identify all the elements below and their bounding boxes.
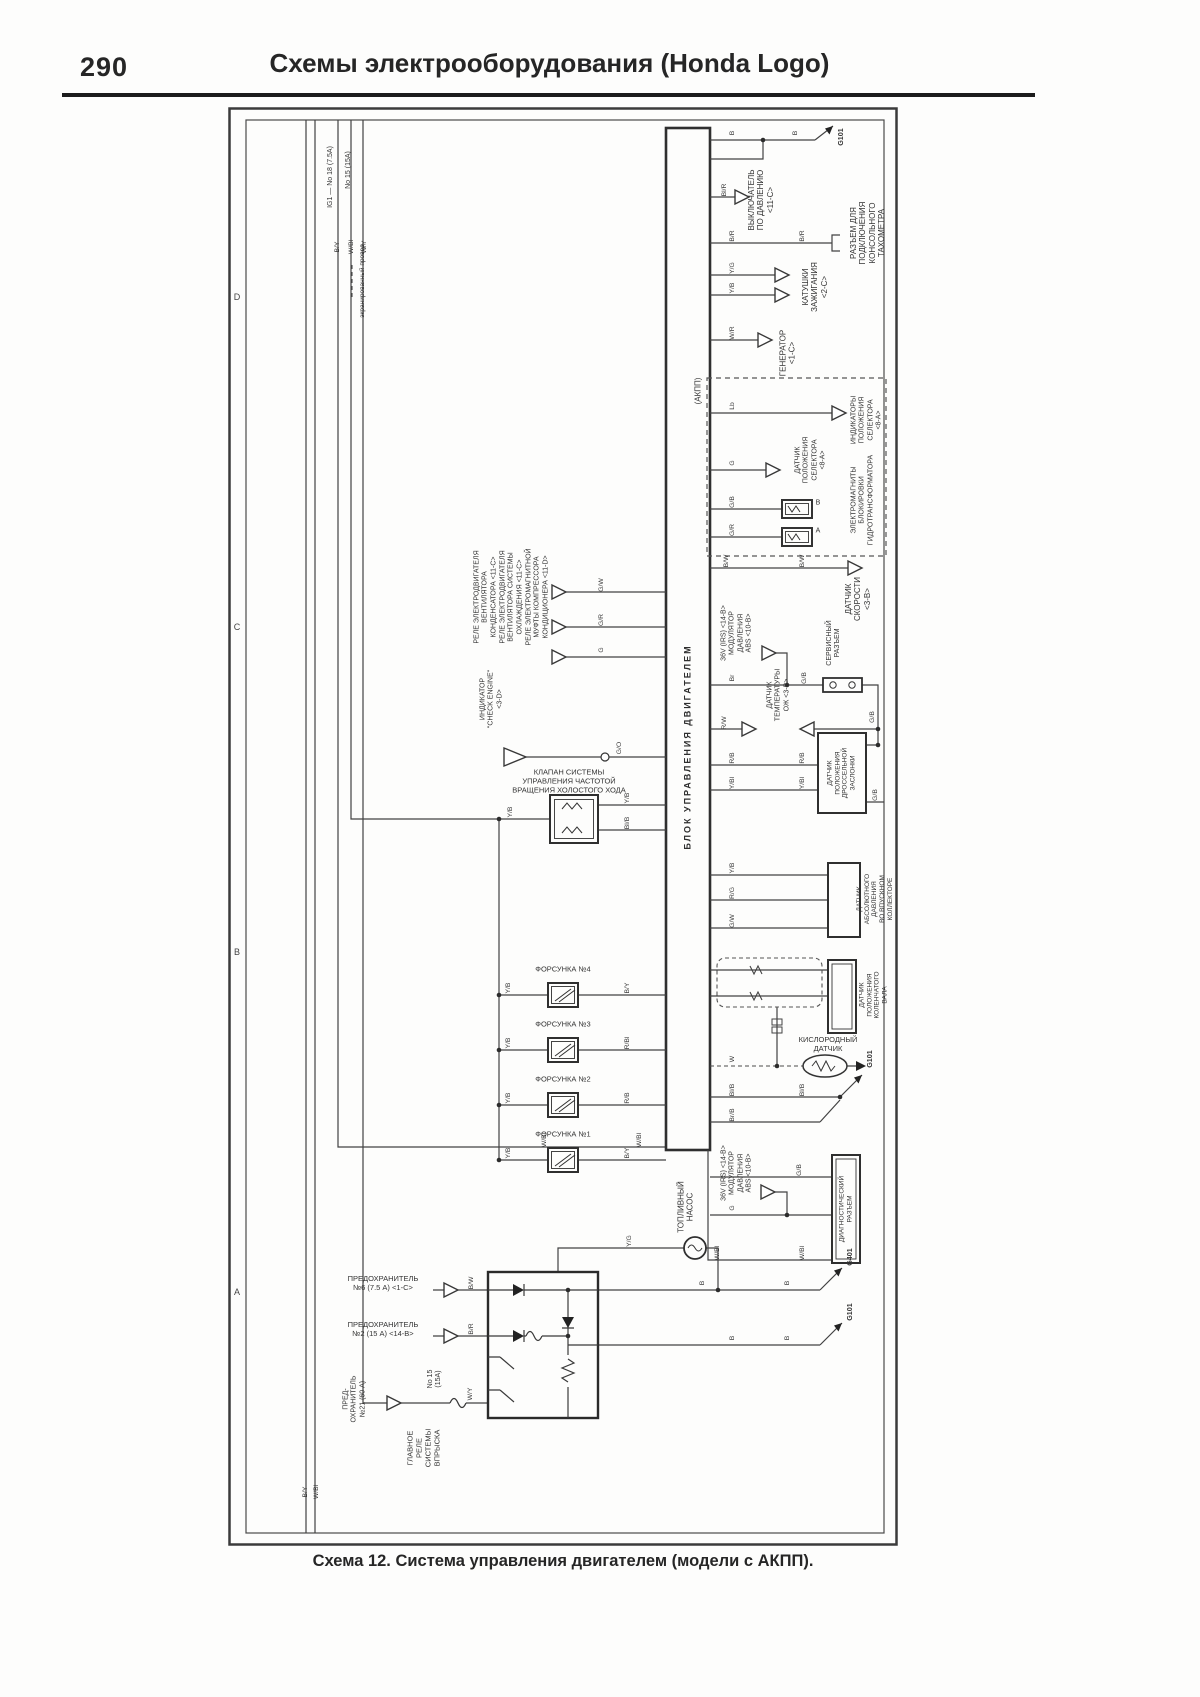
wire-color-label: Y/B bbox=[505, 1093, 513, 1104]
wire-color-label: Y/Bl bbox=[799, 777, 807, 789]
wire-color-label: B/Y bbox=[334, 242, 342, 253]
page-title: Схемы электрооборудования (Honda Logo) bbox=[62, 48, 1037, 79]
wire-color-label: W/Bl bbox=[541, 1133, 549, 1147]
abs-modulator-label: 36V (IRS) <14-B> МОДУЛЯТОР ДАВЛЕНИЯ ABS … bbox=[721, 605, 754, 661]
wire-color-label: Y/B bbox=[505, 1148, 513, 1159]
wire-color-label: G/B bbox=[796, 1164, 804, 1176]
ground-label: G101 bbox=[837, 128, 845, 146]
bulb-connector-icon bbox=[601, 753, 609, 761]
wire-color-label: R/W bbox=[721, 716, 729, 729]
tps-label: ДАТЧИК ПОЛОЖЕНИЯ ДРОССЕЛЬНОЙ ЗАСЛОНКИ bbox=[827, 748, 858, 798]
lockup-solenoid-boxes bbox=[782, 500, 812, 546]
wire-color-label: B bbox=[699, 1281, 707, 1286]
generator-label: ГЕНЕРАТОР <1-C> bbox=[779, 330, 798, 376]
iacv-label: КЛАПАН СИСТЕМЫ УПРАВЛЕНИЯ ЧАСТОТОЙ ВРАЩЕ… bbox=[512, 768, 625, 795]
wire-color-label: B/W bbox=[468, 1277, 476, 1290]
wire-color-label: B bbox=[784, 1281, 792, 1286]
wire-color-label: G/B bbox=[729, 496, 737, 508]
wire-color-label: G/W bbox=[729, 914, 737, 928]
ignition-coils-label: КАТУШКИ ЗАЖИГАНИЯ <2-C> bbox=[801, 262, 829, 312]
solenoid-letter-a: A bbox=[816, 528, 821, 535]
main-relay-label: ГЛАВНОЕ РЕЛЕ СИСТЕМЫ ВПРЫСКА bbox=[406, 1429, 441, 1467]
selector-indicators-label: ИНДИКАТОРЫ ПОЛОЖЕНИЯ СЕЛЕКТОРА <8-A> bbox=[851, 396, 884, 444]
wire-color-label: G bbox=[729, 460, 737, 465]
wire-color-label: R/Bl bbox=[624, 1037, 632, 1050]
zone-letter-a: A bbox=[234, 1287, 240, 1297]
wire-color-label: Y/B bbox=[505, 1038, 513, 1049]
wire-color-label: W/Bl bbox=[348, 240, 356, 254]
pressure-switch-label: ВЫКЛЮЧАТЕЛЬ ПО ДАВЛЕНИЮ <11-C> bbox=[747, 170, 775, 231]
wire-color-label: G/R bbox=[729, 524, 737, 536]
wire-color-label: B/Y bbox=[302, 1487, 310, 1498]
wiring-diagram: D C B A IG1 — No 18 (7.5A) No 15 (15A) B… bbox=[228, 107, 898, 1546]
crank-sensor-box-inner bbox=[832, 964, 852, 1029]
wire-color-label: W/R bbox=[729, 326, 737, 339]
o2-sensor-label: КИСЛОРОДНЫЙ ДАТЧИК bbox=[799, 1035, 858, 1053]
tach-connector-label: РАЗЪЕМ ДЛЯ ПОДКЛЮЧЕНИЯ КОНСОЛЬНОГО ТАХОМ… bbox=[849, 202, 887, 265]
ecu-label: БЛОК УПРАВЛЕНИЯ ДВИГАТЕЛЕМ bbox=[683, 644, 694, 849]
diagnostic-connector-label: ДИАГНОСТИЧЕСКИЙ РАЗЪЕМ bbox=[838, 1176, 853, 1242]
wire-color-label: G bbox=[598, 647, 606, 652]
wire-color-label: B/Y bbox=[624, 1148, 632, 1159]
wire-color-label: W/Bl bbox=[313, 1485, 321, 1499]
zone-letter-b: B bbox=[234, 947, 240, 957]
crank-sensor-label: ДАТЧИК ПОЛОЖЕНИЯ КОЛЕНЧАТОГО ВАЛА bbox=[859, 971, 890, 1018]
service-connector-label: СЕРВИСНЫЙ РАЗЪЕМ bbox=[826, 620, 843, 665]
ground-label: G101 bbox=[846, 1303, 854, 1321]
diagram-caption: Схема 12. Система управления двигателем … bbox=[210, 1552, 916, 1571]
no15-link-label: No 15 (15A) bbox=[427, 1370, 444, 1389]
fuse21-label: ПРЕД- ОХРАНИТЕЛЬ №21 (60 А) bbox=[343, 1376, 368, 1423]
map-sensor-label: ДАТЧИК АБСОЛЮТНОГО ДАВЛЕНИЯ ВО ВПУСКНОМ … bbox=[856, 874, 894, 924]
wire-color-label: B bbox=[792, 131, 800, 136]
wire-color-label: R/G bbox=[729, 887, 737, 899]
ground-label: G101 bbox=[866, 1050, 874, 1068]
fuse6-label: ПРЕДОХРАНИТЕЛЬ №6 (7.5 А) <1-C> bbox=[348, 1274, 419, 1292]
wire-color-label: G bbox=[729, 1205, 737, 1210]
zone-letter-c: C bbox=[234, 622, 241, 632]
shielded-wire-legend: экранированный провод bbox=[359, 244, 367, 318]
wire-color-label: B/R bbox=[468, 1323, 476, 1334]
at-box-label: (АКПП) bbox=[693, 378, 702, 405]
wire-color-label: Y/B bbox=[729, 863, 737, 874]
wire-color-label: G/B bbox=[869, 711, 877, 723]
abs-modulator-label: 36V (IRS) <14-B> МОДУЛЯТОР ДАВЛЕНИЯ ABS … bbox=[721, 1145, 754, 1201]
wire-color-label: Y/B bbox=[729, 283, 737, 294]
wire-color-label: B bbox=[729, 131, 737, 136]
wire-color-label: G/R bbox=[598, 614, 606, 626]
lockup-solenoids-label: ЭЛЕКТРОМАГНИТЫ БЛОКИРОВКИ ГИДРОТРАНСФОРМ… bbox=[851, 455, 876, 545]
iacv-box bbox=[550, 795, 598, 843]
zone-letter-d: D bbox=[234, 292, 241, 302]
wire-color-label: Y/B bbox=[624, 793, 632, 804]
fuel-pump-label: ТОПЛИВНЫЙ НАСОС bbox=[677, 1181, 696, 1232]
wire-color-label: Y/G bbox=[626, 1235, 634, 1247]
wire-color-label: Y/B bbox=[505, 983, 513, 994]
wire-color-label: B/R bbox=[799, 230, 807, 241]
bus-label-no15: No 15 (15A) bbox=[345, 151, 353, 189]
condenser-fan-relay-label: РЕЛЕ ЭЛЕКТРОДВИГАТЕЛЯ ВЕНТИЛЯТОРА КОНДЕН… bbox=[474, 550, 499, 643]
check-engine-label: ИНДИКАТОР "CHECK ENGINE" <3-D> bbox=[480, 670, 505, 728]
manual-page: 290 Схемы электрооборудования (Honda Log… bbox=[0, 0, 1200, 1697]
wire-color-label: Y/Bl bbox=[729, 777, 737, 789]
o2-sensor-symbol bbox=[803, 1055, 866, 1077]
header-rule bbox=[62, 93, 1035, 97]
wire-color-label: W bbox=[729, 1056, 737, 1062]
wiring-diagram-canvas bbox=[228, 107, 898, 1546]
cooling-fan-relay-label: РЕЛЕ ЭЛЕКТРОДВИГАТЕЛЯ ВЕНТИЛЯТОРА СИСТЕМ… bbox=[500, 550, 525, 643]
wires bbox=[401, 126, 884, 1403]
wire-color-label: B/Y bbox=[624, 983, 632, 994]
wire-color-label: Y/B bbox=[507, 807, 515, 818]
wire-color-label: W/Bl bbox=[714, 1246, 722, 1260]
coolant-temp-label: ДАТЧИК ТЕМПЕРАТУРЫ ОЖ <3-B> bbox=[767, 669, 792, 721]
ecu-box bbox=[666, 128, 710, 1150]
wire-color-label: B/R bbox=[729, 230, 737, 241]
wire-color-label: Br/B bbox=[729, 1108, 737, 1121]
wire-color-label: Lb bbox=[729, 402, 737, 410]
fusible-link-icon bbox=[450, 1399, 466, 1408]
wire-color-label: G/W bbox=[598, 578, 606, 592]
wire-color-label: Bl/B bbox=[729, 1084, 737, 1096]
wire-color-label: B/W bbox=[723, 555, 731, 568]
injector4-label: ФОРСУНКА №4 bbox=[535, 965, 590, 974]
wire-color-label: B bbox=[784, 1336, 792, 1341]
outer-frame bbox=[230, 109, 897, 1545]
crank-shield-box bbox=[717, 958, 822, 1007]
wire-color-label: B/W bbox=[799, 555, 807, 568]
wire-color-label: Br bbox=[729, 675, 737, 682]
ground-label: G401 bbox=[846, 1248, 854, 1266]
wire-color-label: G/B bbox=[801, 672, 809, 684]
injector3-label: ФОРСУНКА №3 bbox=[535, 1020, 590, 1029]
wire-color-label: B bbox=[729, 1336, 737, 1341]
injector2-label: ФОРСУНКА №2 bbox=[535, 1075, 590, 1084]
wire-color-label: Bl/B bbox=[624, 817, 632, 829]
wire-color-label: G/O bbox=[616, 742, 624, 754]
wire-color-label: W/Y bbox=[467, 1388, 475, 1401]
wire-color-label: W/Bl bbox=[799, 1246, 807, 1260]
ac-clutch-relay-label: РЕЛЕ ЭЛЕКТРОМАГНИТНОЙ МУФТЫ КОМПРЕССОРА … bbox=[526, 548, 551, 645]
wire-color-label: Bl/R bbox=[721, 184, 729, 197]
main-relay-box bbox=[488, 1272, 598, 1418]
shielded-wires bbox=[352, 265, 803, 1066]
wire-color-label: G/B bbox=[872, 789, 880, 801]
wire-color-label: Y/G bbox=[729, 262, 737, 274]
service-connector-box bbox=[823, 678, 862, 692]
wire-color-label: R/B bbox=[799, 752, 807, 763]
wire-color-label: R/B bbox=[729, 752, 737, 763]
fuse2-label: ПРЕДОХРАНИТЕЛЬ №2 (15 А) <14-B> bbox=[348, 1320, 419, 1338]
selector-sensor-label: ДАТЧИК ПОЛОЖЕНИЯ СЕЛЕКТОРА <8-A> bbox=[795, 437, 828, 484]
bus-label-ig1: IG1 — No 18 (7.5A) bbox=[327, 146, 335, 208]
crank-pickup-glyph bbox=[750, 966, 762, 1000]
wire-color-label: W/Bl bbox=[636, 1133, 644, 1147]
wire-color-label: R/B bbox=[624, 1092, 632, 1103]
solenoid-letter-b: B bbox=[816, 500, 821, 507]
speed-sensor-label: ДАТЧИК СКОРОСТИ <3-B> bbox=[844, 577, 872, 621]
wire-color-label: Bl/B bbox=[799, 1084, 807, 1096]
fuel-pump-symbol bbox=[684, 1237, 706, 1259]
